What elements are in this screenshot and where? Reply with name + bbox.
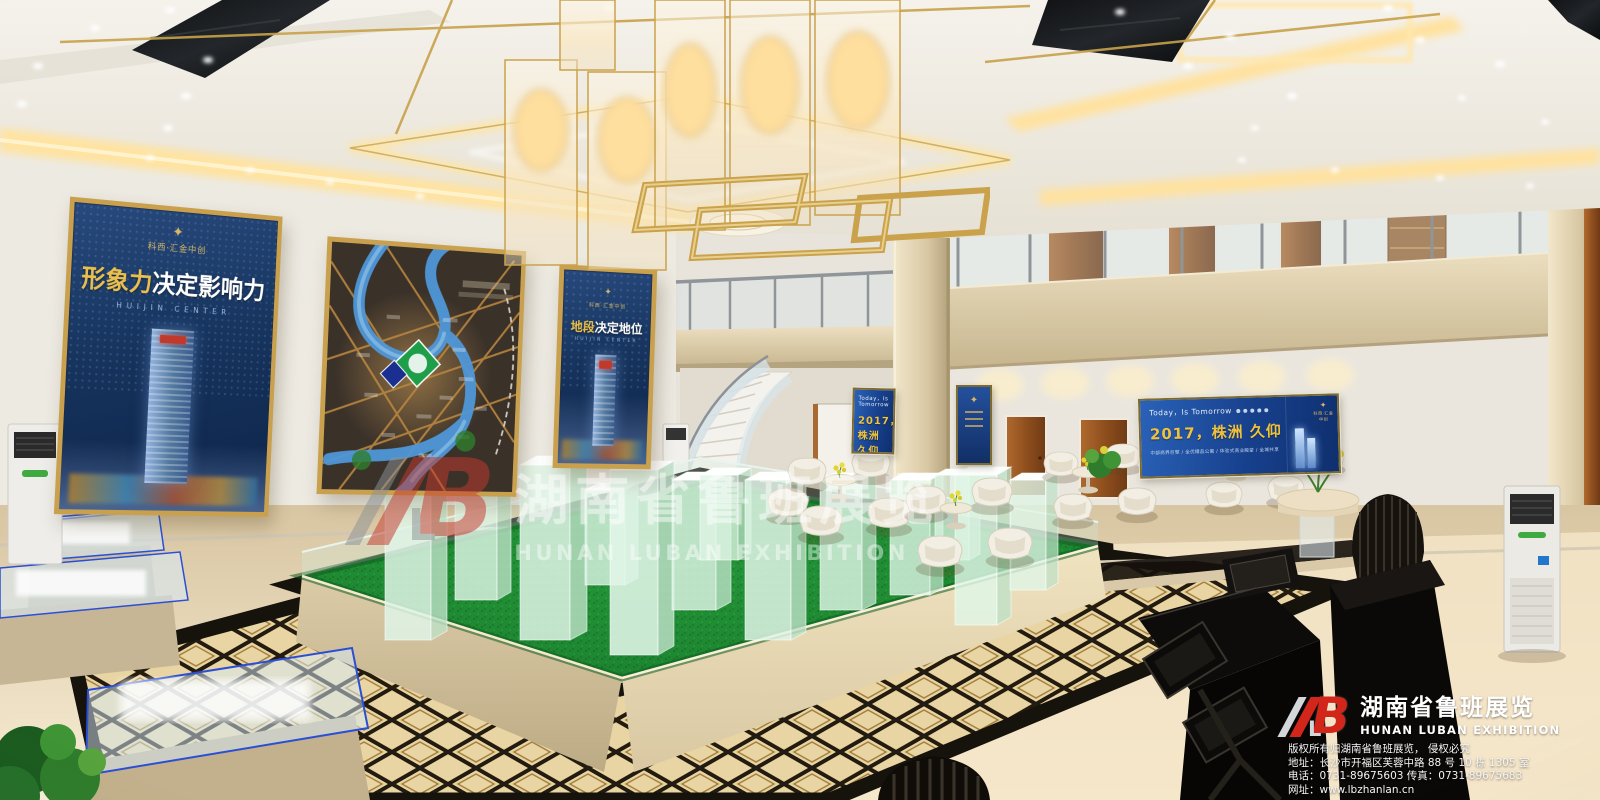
- tower-graphic: [592, 355, 616, 447]
- screen-building-graphic: ✦ 科西·汇金中创: [1285, 395, 1339, 472]
- poster-title-rest: 决定地位: [595, 320, 643, 337]
- watermark-company-cn: 湖南省鲁班展览: [514, 456, 941, 535]
- footer-phone-fax: 电话：0731-89675603 传真：0731-89675683: [1288, 770, 1600, 784]
- poster-title: 地段决定地位: [562, 315, 651, 338]
- poster-location-power: ✦ 科西·汇金中创 地段决定地位 HUIJIN CENTER: [553, 264, 658, 469]
- logo-letter-l: L: [1308, 717, 1321, 741]
- footer-address: 地址：长沙市开福区芙蓉中路 88 号 10 栋 1305 室: [1288, 757, 1600, 771]
- screen-tagline: Today，Is Tomorrow: [1149, 405, 1232, 418]
- poster-title-highlight: 形象力: [81, 263, 153, 297]
- poster-image-power: ✦ 科西·汇金中创 形象力决定影响力 HUIJIN CENTER: [54, 197, 283, 517]
- poster-subtitle: HUIJIN CENTER: [562, 336, 650, 345]
- led-screen-left: Today，Is Tomorrow 2017，株洲 久仰 中部商界巨擘 / 全优…: [851, 388, 895, 455]
- screen-subline: 中部商界巨擘 / 全优精品公寓 / 体验式商业殿堂 / 全城共享: [1150, 447, 1282, 457]
- luban-logo-icon: B L: [368, 456, 496, 545]
- footer-website: 网址：www.lbzhanlan.cn: [1288, 784, 1600, 798]
- screen-logo-text: 科西·汇金中创: [1312, 410, 1334, 423]
- screen-tagline: Today，Is Tomorrow: [854, 390, 893, 409]
- huijin-emblem-icon: ✦: [563, 283, 652, 302]
- vertical-banner: ✦: [956, 385, 992, 465]
- huijin-logo: ✦ 科西·汇金中创: [72, 216, 277, 263]
- poster-title-rest: 决定影响力: [152, 269, 266, 305]
- screen-headline: 2017，株洲 久仰: [1150, 420, 1283, 445]
- logo-letter-l: L: [408, 500, 436, 551]
- tower-graphic: [144, 329, 194, 484]
- watermark-center: B L 湖南省鲁班展览 HUNAN LUBAN EXHIBITION: [368, 456, 941, 565]
- exhibition-hall-render: ✦ 科西·汇金中创 形象力决定影响力 HUIJIN CENTER: [0, 0, 1600, 800]
- tagline-dots-icon: [1236, 408, 1268, 413]
- huijin-emblem-icon: ✦: [958, 395, 990, 406]
- screen-headline: 2017，株洲 久仰: [857, 412, 893, 455]
- footer-brand-block: B L 湖南省鲁班展览 HUNAN LUBAN EXHIBITION 版权所有归…: [1288, 688, 1600, 797]
- huijin-emblem-icon: ✦: [1312, 400, 1334, 410]
- led-screen-right: Today，Is Tomorrow 2017，株洲 久仰 中部商界巨擘 / 全优…: [1138, 393, 1341, 479]
- huijin-logo: ✦ 科西·汇金中创: [563, 283, 652, 311]
- luban-logo-icon: B L: [1288, 691, 1350, 737]
- air-conditioner-right: [1498, 486, 1566, 663]
- chandelier: [470, 0, 990, 280]
- watermark-company-en: HUNAN LUBAN EXHIBITION: [514, 541, 941, 565]
- poster-title-highlight: 地段: [570, 319, 595, 335]
- footer-company-cn: 湖南省鲁班展览: [1360, 688, 1560, 722]
- huijin-logo: ✦ 科西·汇金中创: [1312, 400, 1335, 423]
- footer-company-en: HUNAN LUBAN EXHIBITION: [1360, 723, 1560, 737]
- footer-copyright: 版权所有归湖南省鲁班展览， 侵权必究: [1288, 743, 1600, 757]
